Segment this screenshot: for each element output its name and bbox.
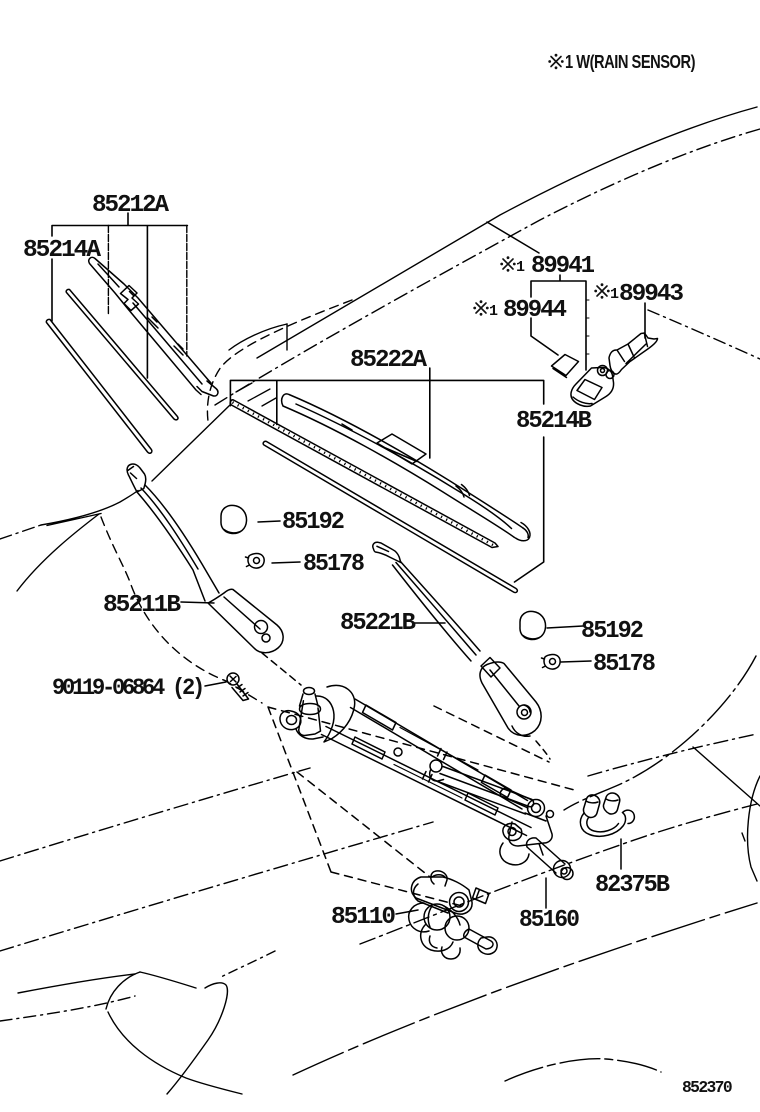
svg-text:85222A: 85222A: [350, 347, 428, 374]
svg-text:85214B: 85214B: [516, 408, 592, 435]
svg-text:852370: 852370: [682, 1079, 732, 1098]
svg-text:85110: 85110: [331, 904, 396, 931]
svg-text:89944: 89944: [503, 297, 567, 324]
svg-text:1: 1: [516, 259, 525, 276]
svg-text:82375B: 82375B: [595, 872, 670, 899]
svg-text:89941: 89941: [531, 253, 595, 280]
svg-text:85178: 85178: [303, 551, 365, 578]
svg-text:85221B: 85221B: [340, 610, 416, 637]
svg-text:85160: 85160: [519, 907, 580, 934]
svg-text:85192: 85192: [282, 509, 344, 536]
svg-text:85212A: 85212A: [92, 192, 170, 219]
svg-text:1: 1: [489, 303, 498, 320]
svg-text:90119-06864 (2): 90119-06864 (2): [52, 675, 202, 701]
svg-text:1: 1: [610, 286, 619, 303]
svg-text:89943: 89943: [619, 281, 684, 308]
svg-text:1 W(RAIN SENSOR): 1 W(RAIN SENSOR): [565, 52, 695, 72]
svg-text:85211B: 85211B: [103, 592, 181, 619]
svg-text:85178: 85178: [593, 651, 656, 678]
svg-text:85214A: 85214A: [23, 237, 102, 264]
svg-text:85192: 85192: [581, 618, 643, 645]
